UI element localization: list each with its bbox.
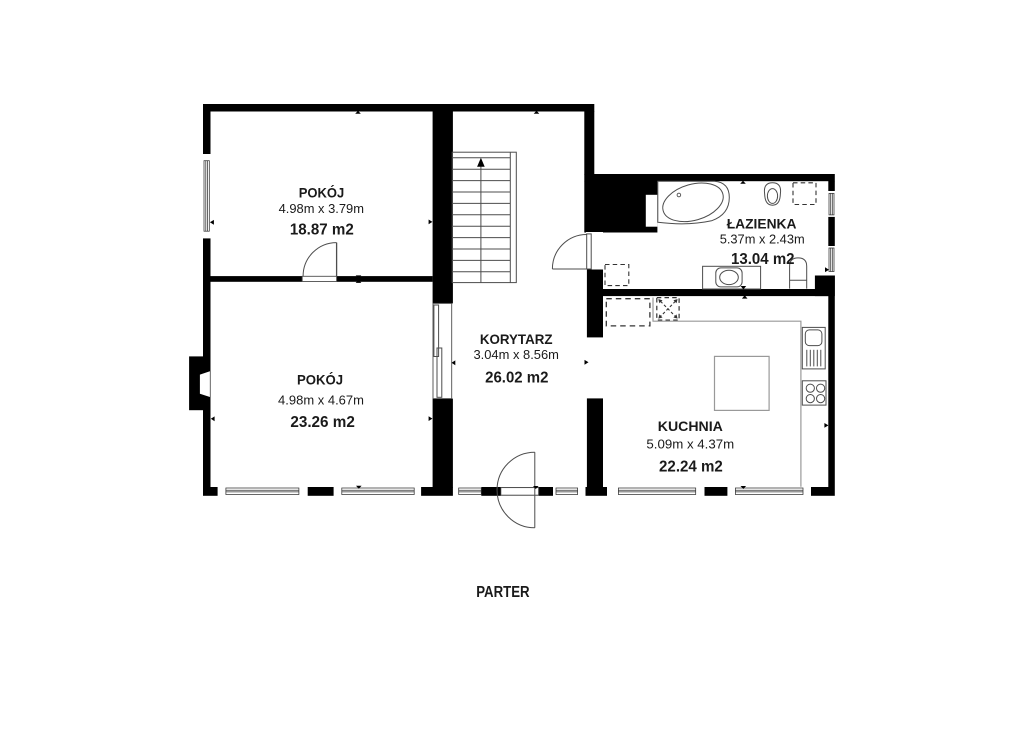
svg-text:22.24 m2: 22.24 m2 (659, 459, 723, 476)
svg-text:POKÓJ: POKÓJ (299, 183, 345, 200)
svg-text:18.87 m2: 18.87 m2 (290, 221, 354, 238)
svg-text:23.26 m2: 23.26 m2 (290, 414, 355, 431)
svg-text:4.98m x 3.79m: 4.98m x 3.79m (279, 201, 364, 216)
svg-text:26.02 m2: 26.02 m2 (485, 369, 548, 386)
svg-text:5.37m x 2.43m: 5.37m x 2.43m (720, 232, 805, 247)
svg-text:13.04 m2: 13.04 m2 (731, 251, 795, 268)
svg-text:4.98m x 4.67m: 4.98m x 4.67m (278, 393, 364, 408)
svg-text:5.09m x 4.37m: 5.09m x 4.37m (646, 437, 734, 452)
svg-text:POKÓJ: POKÓJ (297, 371, 343, 388)
svg-text:KORYTARZ: KORYTARZ (480, 331, 553, 347)
svg-text:PARTER: PARTER (476, 584, 529, 601)
svg-text:ŁAZIENKA: ŁAZIENKA (727, 215, 797, 231)
svg-text:3.04m x 8.56m: 3.04m x 8.56m (473, 347, 559, 362)
svg-text:KUCHNIA: KUCHNIA (658, 418, 723, 434)
